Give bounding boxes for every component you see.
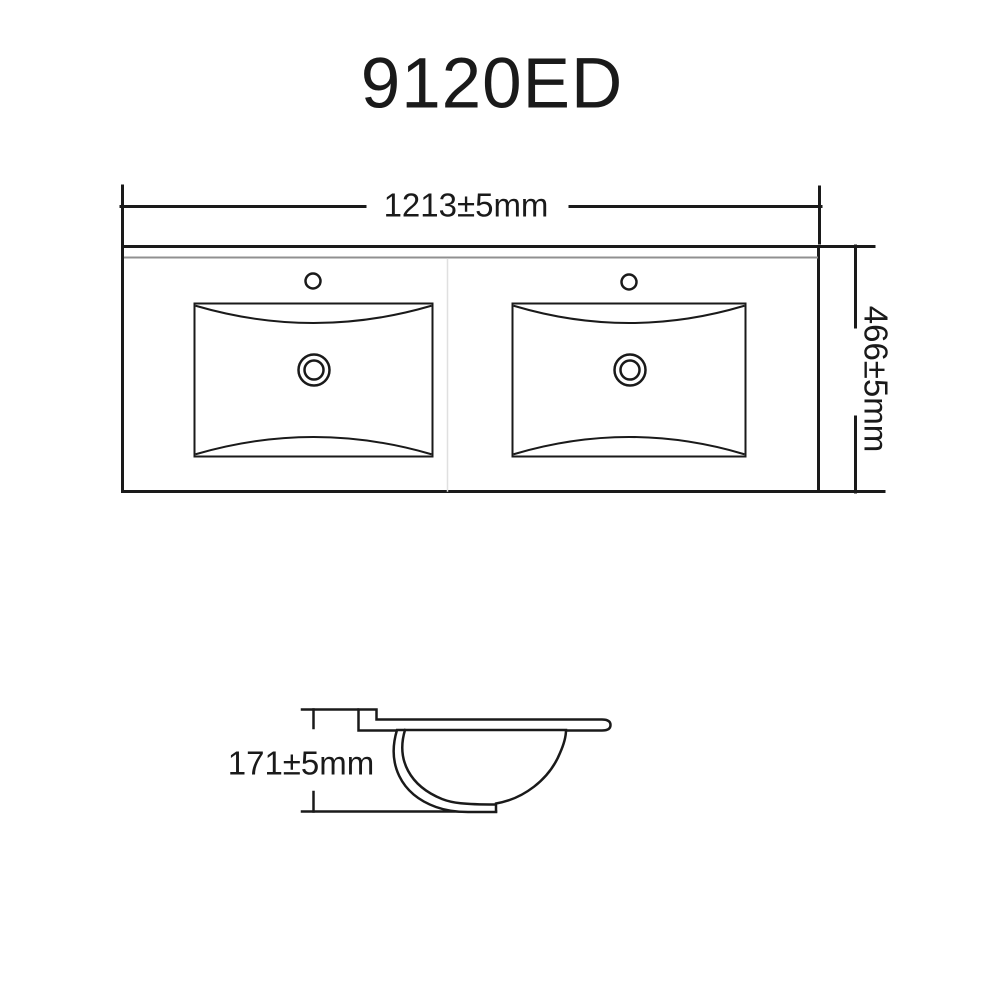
vanity-top-outline bbox=[123, 247, 819, 492]
page-title: 9120ED bbox=[361, 49, 624, 120]
technical-drawing-linework bbox=[0, 0, 1000, 1000]
width-dimension-label: 1213±5mm bbox=[384, 189, 549, 222]
slab-profile bbox=[359, 710, 611, 731]
bowl-outer-profile bbox=[394, 730, 566, 812]
top-view bbox=[121, 186, 884, 492]
depth-dimension-label: 466±5mm bbox=[860, 306, 893, 453]
drawing-sheet: 9120ED 1213±5mm 466±5mm 171±5mm bbox=[0, 0, 1000, 1000]
height-dimension-label: 171±5mm bbox=[228, 747, 375, 780]
